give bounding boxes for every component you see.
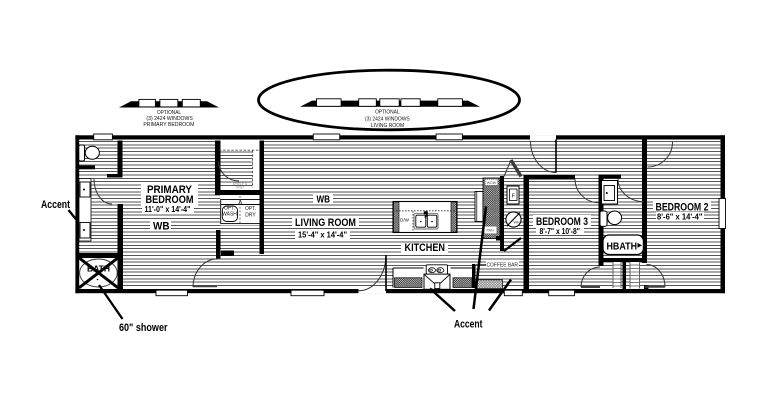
svg-text:WDW: WDW bbox=[487, 181, 497, 185]
svg-text:PRIMARY BEDROOM: PRIMARY BEDROOM bbox=[143, 122, 194, 128]
svg-text:HBATH: HBATH bbox=[607, 240, 638, 252]
svg-text:60" shower: 60" shower bbox=[119, 322, 168, 334]
svg-text:OPTIONAL: OPTIONAL bbox=[375, 110, 400, 116]
svg-text:Accent: Accent bbox=[41, 199, 70, 211]
svg-text:LIVING ROOM: LIVING ROOM bbox=[371, 123, 405, 129]
svg-text:COFFEE BAR: COFFEE BAR bbox=[487, 263, 519, 269]
svg-text:DRY: DRY bbox=[245, 213, 256, 219]
svg-text:BEDROOM: BEDROOM bbox=[146, 194, 194, 206]
svg-text:KITCHEN: KITCHEN bbox=[405, 242, 446, 254]
svg-text:11'-0" x 14'-4": 11'-0" x 14'-4" bbox=[145, 205, 191, 214]
svg-text:15'-4" x 14'-4": 15'-4" x 14'-4" bbox=[298, 231, 347, 240]
svg-text:WH: WH bbox=[514, 221, 520, 225]
svg-text:BATH: BATH bbox=[87, 264, 110, 274]
svg-text:ROD: ROD bbox=[236, 186, 244, 190]
svg-text:8'-6" x 14'-4": 8'-6" x 14'-4" bbox=[657, 213, 703, 222]
svg-text:WB: WB bbox=[317, 194, 331, 206]
svg-text:8'-7" x 10'-8": 8'-7" x 10'-8" bbox=[540, 227, 581, 236]
svg-text:LIVING ROOM: LIVING ROOM bbox=[295, 217, 356, 229]
svg-text:D/W: D/W bbox=[400, 218, 410, 223]
svg-text:WASH: WASH bbox=[222, 212, 237, 218]
svg-text:(3) 2424 WINDOWS: (3) 2424 WINDOWS bbox=[365, 116, 410, 122]
svg-text:OPT.: OPT. bbox=[245, 206, 256, 212]
svg-text:PAN.: PAN. bbox=[486, 229, 494, 233]
svg-text:Accent: Accent bbox=[454, 319, 483, 331]
svg-text:WB: WB bbox=[153, 221, 170, 233]
